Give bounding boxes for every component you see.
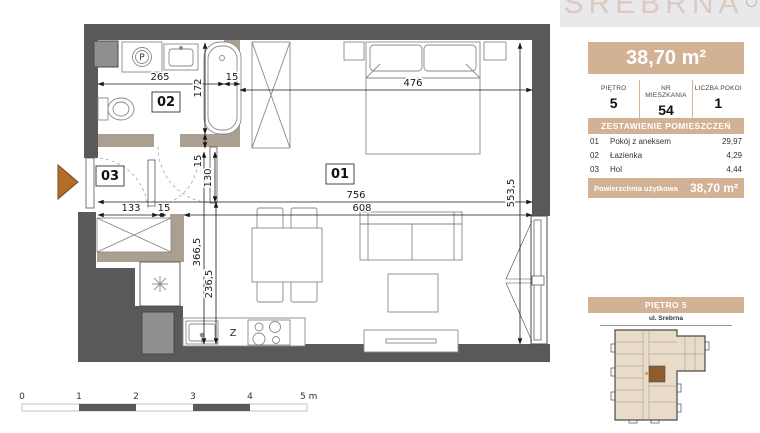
bathtub [204,42,241,134]
info-label-floor: PIĘTRO [588,85,639,92]
dim-15-tub: 15 [193,155,204,168]
scale-tick-5m: 5 m [300,392,317,402]
nightstand-left [344,42,364,60]
toilet [98,98,134,120]
rooms-table-title: ZESTAWIENIE POMIESZCZEŃ [588,118,744,134]
bed [366,42,480,154]
table-row: 03 Hol 4,44 [588,162,744,176]
row-name: Łazienka [610,151,726,160]
info-panel: SREBRNA 38,70 m² PIĘTRO 5 NR MIESZKANIA … [560,0,760,428]
table-row: 01 Pokój z aneksem 29,97 [588,134,744,148]
row-no: 03 [590,165,610,174]
bathroom-sink [164,44,198,70]
duct-shaft-bathroom [94,41,118,67]
scale-tick-3: 3 [190,392,196,402]
apartment-info-row: PIĘTRO 5 NR MIESZKANIA 54 LICZBA POKOI 1 [588,80,744,122]
info-col-rooms-count: LICZBA POKOI 1 [693,80,744,122]
info-col-apartment-number: NR MIESZKANIA 54 [639,80,692,122]
brand-logo: SREBRNA [563,0,743,21]
hall-room-door [148,160,198,206]
dim-553: 553,5 [506,179,517,208]
info-col-floor: PIĘTRO 5 [588,80,639,122]
scale-tick-4: 4 [247,392,253,402]
logo-strip: SREBRNA [560,0,760,27]
usable-area-footer: Powierzchnia użytkowa 38,70 m² [588,178,744,198]
coffee-table [388,274,438,312]
wardrobe-hall [97,218,171,252]
nightstand-right [484,42,506,60]
dim-476: 476 [403,78,422,89]
floorplan-page: P [0,0,760,428]
dim-133: 133 [121,203,140,214]
wardrobe-room [252,42,290,148]
room-label-03: 03 [101,169,119,184]
scale-tick-1: 1 [76,392,82,402]
duct-shaft-kitchen [142,312,174,354]
rooms-summary-table: ZESTAWIENIE POMIESZCZEŃ 01 Pokój z aneks… [588,118,744,198]
brand-logo-mark-icon [746,0,757,7]
street-label: ul. Srebrna [588,315,744,322]
dishwasher-label: Z [230,328,237,339]
dim-366: 366,5 [192,238,203,267]
entrance-arrow-icon [58,165,78,199]
fridge [140,262,180,306]
unit-highlight [649,366,665,382]
room-label-02: 02 [157,95,175,110]
dim-236: 236,5 [204,270,215,299]
row-area: 4,44 [726,165,742,174]
dim-608: 608 [352,203,371,214]
row-no: 01 [590,137,610,146]
stove [248,320,290,345]
scale-bar: 0 1 2 3 4 5 m [19,392,317,411]
kitchen-sink [186,321,218,344]
info-value-apartment-number: 54 [640,102,691,118]
unit-entrance-marker [645,372,648,375]
floor-section-title: PIĘTRO 5 [588,297,744,313]
washer-label: P [139,53,145,63]
info-label-rooms-count: LICZBA POKOI [693,85,744,92]
building-key-plan [595,328,725,425]
scale-tick-2: 2 [133,392,139,402]
dim-172: 172 [193,78,204,97]
row-name: Hol [610,165,726,174]
street-line [600,325,732,326]
info-label-apartment-number: NR MIESZKANIA [640,85,691,99]
dim-265: 265 [150,72,169,83]
usable-area-label: Powierzchnia użytkowa [594,184,678,193]
dining-set [252,208,322,302]
dim-15-hall: 15 [158,203,171,214]
row-area: 4,29 [726,151,742,160]
balcony-window [506,216,547,344]
row-no: 02 [590,151,610,160]
tv-stand [364,330,458,352]
dim-756: 756 [346,190,365,201]
row-name: Pokój z aneksem [610,137,722,146]
scale-tick-0: 0 [19,392,25,402]
info-value-floor: 5 [588,95,639,111]
table-row: 02 Łazienka 4,29 [588,148,744,162]
floorplan-drawing: P [0,0,560,428]
dim-130: 130 [203,168,214,187]
sofa [360,212,462,260]
area-banner: 38,70 m² [588,42,744,74]
info-value-rooms-count: 1 [693,95,744,111]
dim-15-bath: 15 [226,72,239,83]
row-area: 29,97 [722,137,742,146]
room-label-01: 01 [331,167,349,182]
usable-area-value: 38,70 m² [690,181,738,195]
